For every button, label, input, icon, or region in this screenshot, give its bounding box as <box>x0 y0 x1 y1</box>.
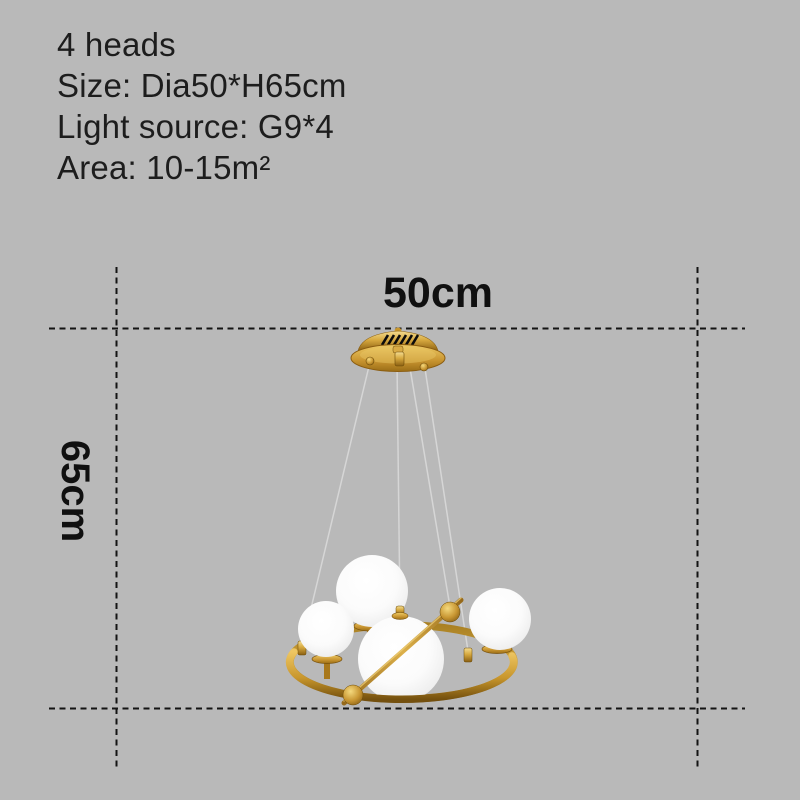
glass-globe-left <box>298 601 354 657</box>
rod-finial-ball <box>343 685 363 705</box>
spec-heads: 4 heads <box>57 24 347 65</box>
rod-finial-ball <box>440 602 460 622</box>
spec-area: Area: 10-15m² <box>57 147 347 188</box>
product-image: 4 heads Size: Dia50*H65cm Light source: … <box>0 0 800 800</box>
glass-globe-right <box>469 588 531 650</box>
canopy-screw <box>420 363 428 371</box>
height-dimension-label: 65cm <box>52 431 98 551</box>
product-specs: 4 heads Size: Dia50*H65cm Light source: … <box>57 24 347 188</box>
ceiling-canopy <box>351 328 445 372</box>
canopy-center-fitting <box>395 352 404 366</box>
spec-light-source: Light source: G9*4 <box>57 106 347 147</box>
diameter-dimension-label: 50cm <box>373 269 503 318</box>
canopy-screw <box>366 357 374 365</box>
spec-size: Size: Dia50*H65cm <box>57 65 347 106</box>
wire-post <box>464 648 472 662</box>
